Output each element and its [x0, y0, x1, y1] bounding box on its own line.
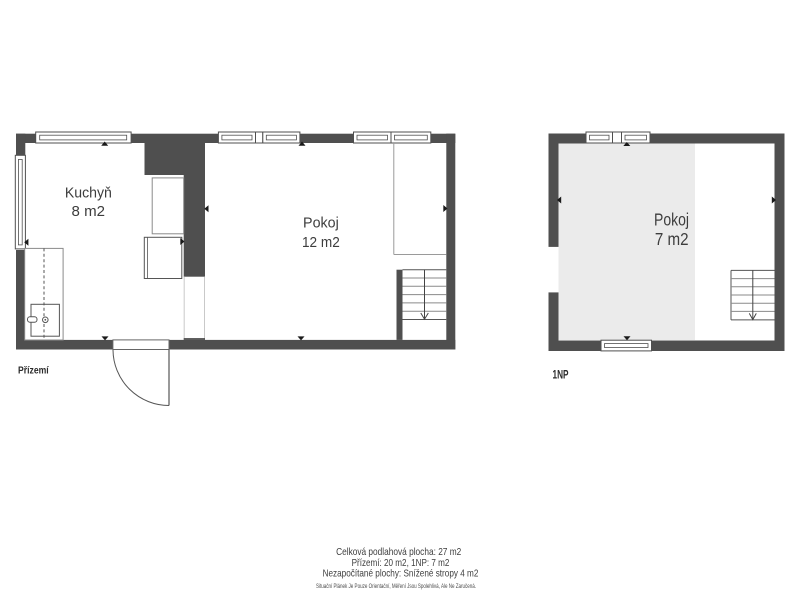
svg-text:12 m2: 12 m2	[302, 234, 340, 251]
svg-text:Pokoj: Pokoj	[654, 210, 689, 230]
svg-text:Kuchyň: Kuchyň	[65, 185, 112, 201]
svg-text:Přízemí: Přízemí	[18, 366, 50, 377]
svg-text:1NP: 1NP	[553, 368, 569, 382]
svg-text:7 m2: 7 m2	[655, 229, 689, 249]
svg-text:Situační Plánek Je Pouze Orien: Situační Plánek Je Pouze Orientační, Měř…	[316, 583, 476, 590]
svg-text:Celková podlahová plocha: 27 m: Celková podlahová plocha: 27 m2	[336, 547, 461, 558]
svg-text:Pokoj: Pokoj	[303, 215, 339, 232]
svg-text:8 m2: 8 m2	[72, 204, 106, 220]
svg-text:Přízemí: 20 m2, 1NP: 7 m2: Přízemí: 20 m2, 1NP: 7 m2	[352, 558, 450, 569]
svg-text:Nezapočítané plochy: Snížené s: Nezapočítané plochy: Snížené stropy 4 m2	[323, 569, 479, 580]
